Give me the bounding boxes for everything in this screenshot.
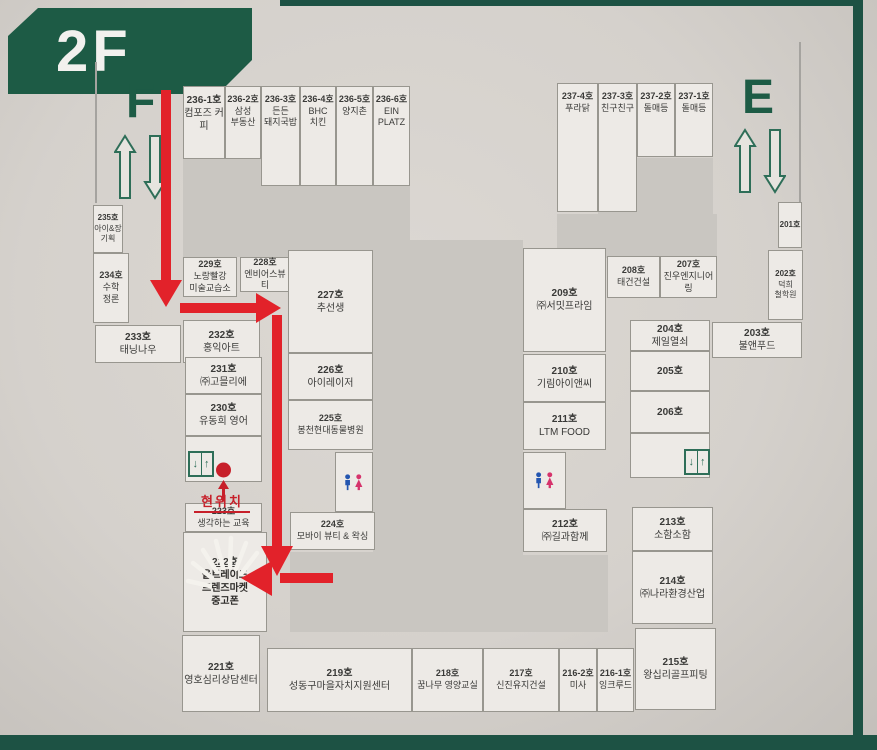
room-number: 214호 [660, 575, 686, 588]
elevator-down-arrow: ↓ [190, 453, 202, 475]
room-227: 227호추선생 [288, 250, 373, 353]
room-number: 201호 [780, 220, 801, 230]
frame-right [853, 0, 863, 750]
room-216-1: 216-1호잉크루드 [597, 648, 634, 712]
room-name: 삼성 부동산 [231, 106, 256, 129]
room-name: LTM FOOD [539, 426, 590, 439]
room-210: 210호기림아이앤씨 [523, 354, 606, 402]
room-number: 236-3호 [265, 94, 296, 106]
room-name: 홍익아트 [203, 342, 240, 355]
room-number: 231호 [211, 363, 237, 376]
room-name: 올트레이드 프렌즈마켓 중고폰 [202, 569, 248, 608]
room-231: 231호㈜고믈리에 [185, 357, 262, 394]
room-217: 217호신진유지건설 [483, 648, 559, 712]
room-number: 203호 [744, 327, 770, 340]
room-236-5: 236-5호양지촌 [336, 86, 373, 186]
room-name: 미사 [570, 680, 587, 692]
room-name: 왕십리골프피팅 [643, 669, 707, 682]
room-235: 235호아이&장 기획 [93, 205, 123, 253]
room-number: 225호 [319, 413, 342, 425]
frame-top [280, 0, 861, 6]
room-name: 진우엔지니어링 [661, 271, 716, 294]
room-number: 216-2호 [562, 668, 593, 680]
elevator-up-arrow: ↑ [202, 453, 213, 475]
room-226: 226호아이레이저 [288, 353, 373, 400]
room-237-1: 237-1호돌매등 [675, 83, 713, 157]
room-name: 제일열쇠 [652, 336, 689, 349]
room-218: 218호꿈나무 영양교실 [412, 648, 483, 712]
room-name: ㈜고믈리에 [200, 376, 247, 389]
room-214: 214호㈜나라환경산업 [632, 551, 713, 624]
room-name: 친구친구 [601, 103, 634, 115]
room-name: BHC 치킨 [308, 106, 327, 129]
room-202: 202호덕희 철학원 [768, 250, 803, 320]
room-234: 234호수학 정론 [93, 253, 129, 323]
room-236-2: 236-2호삼성 부동산 [225, 86, 261, 159]
room-number: 221호 [208, 661, 234, 674]
room-206: 206호 [630, 391, 710, 433]
room-number: 217호 [509, 668, 532, 680]
room-221: 221호영호심리상담센터 [182, 635, 260, 712]
room-209: 209호㈜서밋프라임 [523, 248, 606, 352]
room-number: 233호 [125, 331, 151, 344]
room-name: 푸라닭 [565, 103, 590, 115]
room-236-4: 236-4호BHC 치킨 [300, 86, 336, 186]
room-name: 기림아이앤씨 [537, 378, 592, 391]
room-236-6: 236-6호EIN PLATZ [373, 86, 410, 186]
room-name: 봉천현대동물병원 [297, 425, 363, 437]
room-number: 236-1호 [187, 94, 222, 107]
room-215: 215호왕십리골프피팅 [635, 628, 716, 710]
room-number: 212호 [552, 518, 578, 531]
room-213: 213호소함소함 [632, 507, 713, 551]
room-name: ㈜나라환경산업 [640, 588, 705, 601]
room-name: 소함소함 [654, 529, 691, 542]
room-number: 202호 [775, 269, 796, 279]
wall-line [95, 62, 97, 203]
stair-letter-f: F [126, 74, 155, 129]
room-name: 태닝나우 [120, 344, 157, 357]
room-211: 211호LTM FOOD [523, 402, 606, 450]
room-224: 224호모바이 뷰티 & 왁싱 [290, 512, 375, 550]
room-228: 228호엔비어스뷰티 [240, 257, 290, 292]
room-name: 덕희 철학원 [774, 280, 796, 301]
room-name: 잉크루드 [599, 680, 632, 692]
room-number: 236-6호 [376, 94, 407, 106]
restroom-right [523, 452, 566, 509]
room-216-2: 216-2호미사 [559, 648, 597, 712]
room-number: 210호 [552, 365, 578, 378]
room-237-2: 237-2호돌매등 [637, 83, 675, 157]
room-236-3: 236-3호든든 돼지국밥 [261, 86, 300, 186]
room-name: 돌매등 [644, 103, 669, 115]
room-name: 아이레이저 [308, 377, 354, 390]
room-207: 207호진우엔지니어링 [660, 256, 717, 298]
room-name: 모바이 뷰티 & 왁싱 [297, 531, 368, 543]
room-number: 207호 [677, 259, 700, 271]
room-222: 222호올트레이드 프렌즈마켓 중고폰 [183, 532, 267, 632]
room-number: 226호 [318, 364, 344, 377]
frame-bottom [0, 735, 877, 750]
room-number: 237-1호 [678, 91, 709, 103]
room-number: 206호 [657, 406, 683, 419]
floor-map-board: 2F F E 236-1호컴포즈 커피 236-2호삼성 부동산 236-3호든… [0, 0, 877, 750]
escalator-up-down-icon [734, 128, 786, 194]
room-219: 219호성동구마을자치지원센터 [267, 648, 412, 712]
room-number: 215호 [663, 656, 689, 669]
room-212: 212호㈜길과함께 [523, 509, 607, 552]
room-230: 230호유동희 영어 [185, 394, 262, 436]
room-name: 유동희 영어 [199, 415, 248, 428]
room-number: 211호 [552, 413, 577, 426]
room-203: 203호불앤푸드 [712, 322, 802, 358]
room-237-3: 237-3호친구친구 [598, 83, 637, 212]
courtyard-area [373, 240, 523, 632]
room-name: 노랑빨강 미술교습소 [189, 271, 230, 294]
room-number: 224호 [321, 519, 344, 531]
room-name: 꿈나무 영양교실 [417, 680, 477, 692]
room-name: 양지촌 [342, 106, 367, 118]
room-name: ㈜길과함께 [542, 531, 589, 544]
room-number: 237-3호 [602, 91, 633, 103]
restroom-left [335, 452, 373, 512]
room-number: 228호 [253, 257, 276, 269]
room-name: 영호심리상담센터 [184, 674, 258, 687]
floor-label: 2F [8, 18, 132, 85]
elevator-down-arrow: ↓ [686, 451, 698, 473]
room-201: 201호 [778, 202, 802, 248]
room-name: 신진유지건설 [496, 680, 546, 692]
room-number: 234호 [99, 270, 122, 282]
elevator-icon: ↓ ↑ [188, 451, 214, 477]
restroom-icon [342, 474, 366, 491]
room-name: 아이&장 기획 [94, 224, 121, 245]
room-number: 204호 [657, 323, 683, 336]
room-name: 컴포즈 커피 [184, 107, 224, 133]
room-name: 생각하는 교육 [197, 518, 249, 530]
room-name: 불앤푸드 [739, 340, 776, 353]
room-name: 추선생 [317, 302, 345, 315]
room-number: 209호 [552, 287, 578, 300]
room-number: 208호 [622, 265, 645, 277]
room-number: 213호 [660, 516, 686, 529]
room-name: 엔비어스뷰티 [241, 269, 289, 292]
room-number: 232호 [209, 329, 235, 342]
room-number: 236-2호 [227, 94, 258, 106]
room-number: 219호 [327, 667, 353, 680]
room-number: 227호 [318, 289, 344, 302]
courtyard-area [523, 555, 608, 632]
room-205: 205호 [630, 351, 710, 391]
escalator-up-down-icon [114, 134, 166, 200]
restroom-icon [533, 472, 557, 489]
room-name: 돌매등 [682, 103, 707, 115]
room-number: 229호 [198, 259, 221, 271]
room-208: 208호태건건설 [607, 256, 660, 298]
room-237-4: 237-4호푸라닭 [557, 83, 598, 212]
room-name: EIN PLATZ [378, 106, 405, 129]
room-number: 236-5호 [339, 94, 370, 106]
room-number: 218호 [436, 668, 459, 680]
room-number: 237-4호 [562, 91, 593, 103]
room-number: 205호 [657, 365, 683, 378]
room-229: 229호노랑빨강 미술교습소 [183, 257, 237, 297]
room-number: 216-1호 [600, 668, 631, 680]
stair-letter-e: E [742, 70, 774, 125]
room-204: 204호제일열쇠 [630, 320, 710, 351]
room-225: 225호봉천현대동물병원 [288, 400, 373, 450]
room-233: 233호태닝나우 [95, 325, 181, 363]
elevator-icon: ↓ ↑ [684, 449, 710, 475]
room-236-1: 236-1호컴포즈 커피 [183, 86, 225, 159]
room-name: 든든 돼지국밥 [264, 106, 297, 129]
room-name: 성동구마을자치지원센터 [289, 680, 390, 693]
current-location-label: 현위치 [194, 491, 250, 513]
room-name: 수학 정론 [103, 282, 120, 305]
room-number: 236-4호 [302, 94, 333, 106]
room-name: ㈜서밋프라임 [537, 300, 593, 313]
room-number: 235호 [98, 213, 119, 223]
courtyard-area [290, 552, 375, 632]
room-name: 태건건설 [617, 277, 650, 289]
wall-line [799, 42, 801, 202]
room-number: 230호 [211, 402, 237, 415]
room-number: 237-2호 [640, 91, 671, 103]
elevator-up-arrow: ↑ [698, 451, 709, 473]
room-number: 222호 [212, 556, 238, 569]
